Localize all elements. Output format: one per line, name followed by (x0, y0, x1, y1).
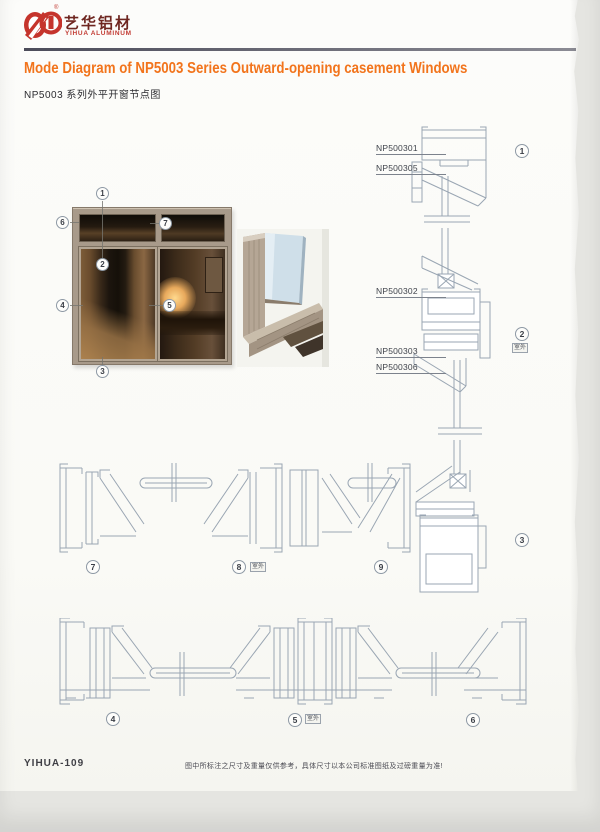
scanned-catalog-sheet: ® 艺华铝材 YIHUA ALUMINUM Mode Diagram of NP… (0, 0, 600, 832)
table-silhouette (160, 311, 225, 335)
callout-9-detail: 9 (374, 560, 388, 574)
cabinet-silhouette (205, 257, 223, 293)
callout-3-window: 3 (96, 365, 109, 378)
profile-label-np500305: NP500305 (376, 163, 446, 175)
callout-2-window: 2 (96, 258, 109, 271)
callout-4-detail: 4 (106, 712, 120, 726)
callout-5-window: 5 (163, 299, 176, 312)
leader-line (70, 305, 83, 306)
leader-line (149, 305, 164, 306)
profile-corner-photo (237, 229, 329, 367)
registered-mark: ® (54, 5, 58, 11)
interior-hallway (81, 249, 155, 359)
brand-name-en: YIHUA ALUMINUM (65, 30, 132, 37)
callout-8-detail: 8 (232, 560, 246, 574)
footer-page-code: YIHUA-109 (24, 758, 84, 769)
transom-pane-right (161, 214, 225, 242)
callout-6-detail: 6 (466, 713, 480, 727)
page-title-en: Mode Diagram of NP5003 Series Outward-op… (24, 60, 467, 78)
profile-label-np500306: NP500306 (376, 362, 446, 374)
callout-4-window: 4 (56, 299, 69, 312)
callout-5-detail: 5 (288, 713, 302, 727)
window-photo (72, 207, 232, 365)
leader-line (70, 222, 79, 223)
callout-3-section: 3 (515, 533, 529, 547)
callout-7-window: 7 (159, 217, 172, 230)
header-rule (24, 48, 576, 51)
profile-label-np500303: NP500303 (376, 346, 446, 358)
outdoor-badge: 室外 (305, 714, 321, 724)
catalog-page: ® 艺华铝材 YIHUA ALUMINUM Mode Diagram of NP… (0, 0, 580, 791)
callout-1-section: 1 (515, 144, 529, 158)
callout-1-window: 1 (96, 187, 109, 200)
footer-disclaimer: 图中所标注之尺寸及重量仅供参考，具体尺寸以本公司标准图纸及过磅重量为准! (185, 761, 443, 771)
yihua-logo-icon (22, 7, 62, 43)
outdoor-badge: 室外 (512, 343, 528, 353)
outdoor-badge: 室外 (250, 562, 266, 572)
callout-7-detail: 7 (86, 560, 100, 574)
callout-2-section: 2 (515, 327, 529, 341)
horizontal-details-row1-drawing (52, 462, 414, 554)
page-title-cn: NP5003 系列外平开窗节点图 (24, 86, 161, 101)
profile-label-np500302: NP500302 (376, 286, 446, 298)
horizontal-details-row2-drawing (52, 618, 530, 706)
casement-pane-left (79, 247, 157, 361)
leader-line (102, 201, 103, 258)
transom-pane-left (79, 214, 156, 242)
callout-6-window: 6 (56, 216, 69, 229)
profile-label-np500301: NP500301 (376, 143, 446, 155)
